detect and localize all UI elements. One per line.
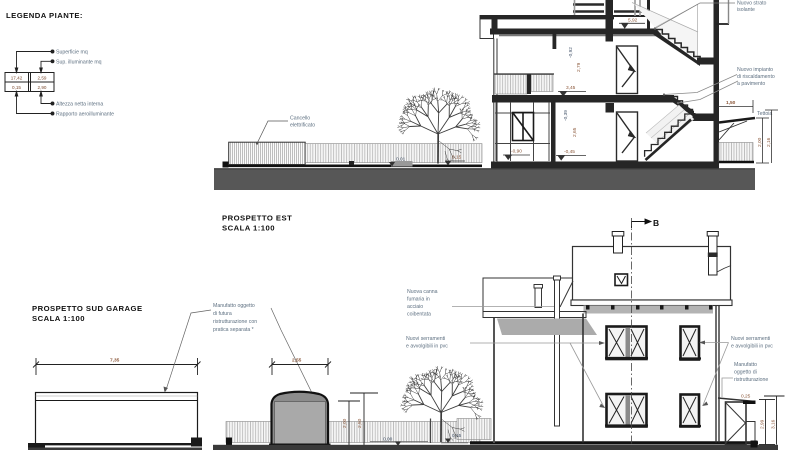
- svg-text:Nuovo strato: Nuovo strato: [737, 1, 767, 7]
- svg-text:2,90: 2,90: [38, 85, 47, 90]
- svg-text:Altezza netta interna: Altezza netta interna: [56, 102, 103, 108]
- svg-text:e avvolgibili in pvc: e avvolgibili in pvc: [406, 344, 448, 350]
- svg-text:-0,92: -0,92: [568, 47, 574, 58]
- svg-text:17,42: 17,42: [11, 76, 23, 81]
- svg-text:2,16: 2,16: [766, 137, 772, 147]
- svg-text:PROSPETTO EST: PROSPETTO EST: [222, 214, 292, 223]
- svg-text:ristrutturazione con: ristrutturazione con: [213, 319, 257, 325]
- svg-text:0,15: 0,15: [452, 155, 462, 161]
- svg-text:Tettoia: Tettoia: [757, 111, 772, 117]
- svg-text:0,15: 0,15: [452, 433, 462, 439]
- svg-text:SCALA 1:100: SCALA 1:100: [222, 224, 275, 233]
- svg-text:2,65: 2,65: [572, 127, 578, 137]
- svg-text:0,01: 0,01: [396, 156, 406, 162]
- svg-text:ristrutturazione: ristrutturazione: [734, 377, 768, 383]
- svg-text:Nuovi serramenti: Nuovi serramenti: [731, 336, 770, 342]
- svg-text:Manufatto oggetto: Manufatto oggetto: [213, 303, 255, 309]
- svg-text:Nuova canna: Nuova canna: [407, 289, 438, 295]
- svg-text:-0,90: -0,90: [511, 149, 522, 155]
- svg-text:SCALA 1:100: SCALA 1:100: [32, 314, 85, 323]
- svg-text:PROSPETTO SUD GARAGE: PROSPETTO SUD GARAGE: [32, 304, 143, 313]
- svg-text:-0,39: -0,39: [563, 110, 569, 121]
- svg-text:-0,45: -0,45: [564, 149, 575, 155]
- svg-text:2,00: 2,00: [342, 418, 348, 428]
- svg-text:coibentata: coibentata: [407, 312, 431, 318]
- svg-text:2,50: 2,50: [357, 418, 363, 428]
- svg-text:elettrificato: elettrificato: [290, 123, 315, 129]
- svg-text:Nuovo impianto: Nuovo impianto: [737, 67, 773, 73]
- svg-text:di riscaldamento: di riscaldamento: [737, 74, 775, 80]
- svg-text:Rapporto aeroilluminante: Rapporto aeroilluminante: [56, 112, 114, 118]
- svg-text:3,16: 3,16: [771, 419, 777, 429]
- svg-text:2,55: 2,55: [292, 358, 302, 364]
- svg-text:di futura: di futura: [213, 311, 232, 317]
- svg-text:5,92: 5,92: [628, 18, 638, 24]
- svg-text:2,99: 2,99: [760, 419, 766, 429]
- svg-text:e avvolgibili in pvc: e avvolgibili in pvc: [731, 344, 773, 350]
- svg-text:Sup. illuminante mq: Sup. illuminante mq: [56, 60, 102, 66]
- svg-text:fumaria in: fumaria in: [407, 297, 430, 303]
- svg-text:0,15: 0,15: [12, 85, 21, 90]
- svg-text:0,25: 0,25: [741, 394, 751, 400]
- svg-text:Manufatto: Manufatto: [734, 362, 757, 368]
- svg-text:pratica separata *: pratica separata *: [213, 327, 254, 333]
- svg-text:B: B: [653, 218, 659, 228]
- svg-text:2,79: 2,79: [576, 62, 582, 72]
- svg-text:2,00: 2,00: [757, 137, 763, 147]
- svg-text:2,59: 2,59: [38, 76, 47, 81]
- svg-text:Superficie mq: Superficie mq: [56, 50, 88, 56]
- svg-text:acciaio: acciaio: [407, 304, 423, 310]
- svg-text:a pavimento: a pavimento: [737, 81, 765, 87]
- svg-text:Nuovi serramenti: Nuovi serramenti: [406, 336, 445, 342]
- svg-text:oggetto di: oggetto di: [734, 370, 757, 376]
- svg-text:LEGENDA PIANTE:: LEGENDA PIANTE:: [6, 11, 83, 20]
- svg-text:3,45: 3,45: [566, 85, 576, 91]
- svg-text:1,50: 1,50: [726, 100, 736, 106]
- svg-text:7,35: 7,35: [110, 358, 120, 364]
- svg-text:isolante: isolante: [737, 7, 755, 13]
- svg-text:Cancello: Cancello: [290, 116, 310, 122]
